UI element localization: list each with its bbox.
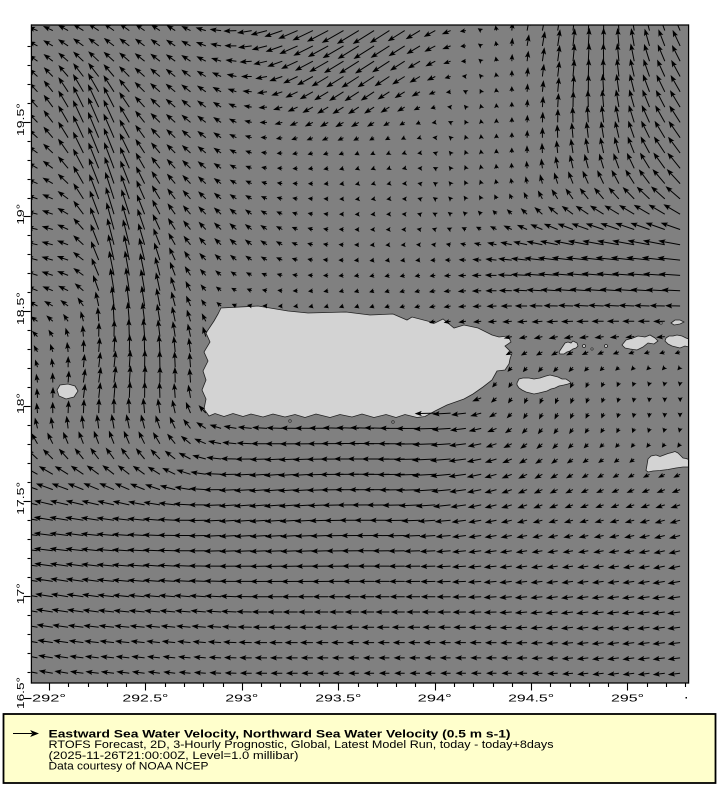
svg-text:18.5°: 18.5° <box>15 292 27 325</box>
svg-text:292.5°: 292.5° <box>122 692 168 704</box>
svg-text:294°: 294° <box>418 692 452 704</box>
svg-text:293.5°: 293.5° <box>315 692 361 704</box>
svg-text:17.5°: 17.5° <box>15 482 27 515</box>
svg-text:16.5°: 16.5° <box>15 677 27 709</box>
svg-text:293°: 293° <box>225 692 258 704</box>
svg-text:19°: 19° <box>15 204 27 225</box>
svg-text:Data courtesy of NOAA NCEP: Data courtesy of NOAA NCEP <box>49 761 209 773</box>
svg-text:19.5°: 19.5° <box>15 103 27 136</box>
svg-text:294.5°: 294.5° <box>508 692 554 704</box>
svg-text:295°: 295° <box>611 692 644 704</box>
svg-text:292°: 292° <box>32 692 66 704</box>
svg-text:18°: 18° <box>15 393 27 414</box>
svg-text:17°: 17° <box>15 583 27 604</box>
